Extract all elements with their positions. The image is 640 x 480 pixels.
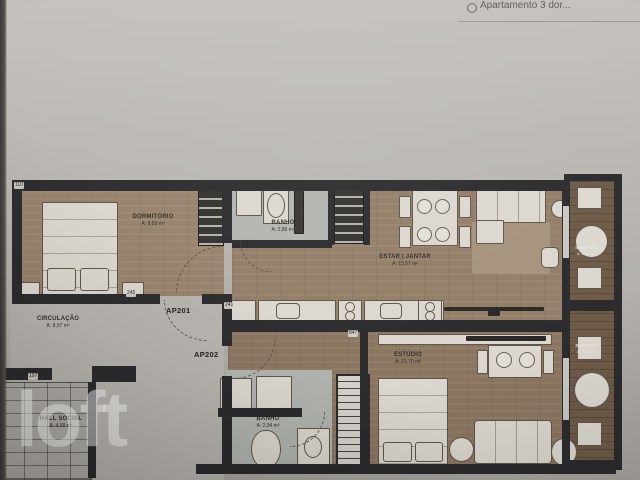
sofa bbox=[474, 420, 552, 464]
room-label-dormitorio: DORMITÓRIO A: 8,53 m² bbox=[118, 214, 188, 227]
listing-header[interactable]: Apartamento 3 dor... bbox=[455, 0, 640, 24]
wall bbox=[362, 374, 370, 468]
dimension-label: 241 bbox=[224, 302, 234, 309]
shower bbox=[236, 188, 262, 216]
place-setting bbox=[417, 199, 432, 214]
kitchen-sink bbox=[380, 303, 402, 319]
pouf bbox=[541, 247, 559, 268]
wall bbox=[92, 366, 136, 382]
room-label-estar-jantar: ESTAR | JANTAR A: 15,57 m² bbox=[372, 254, 438, 267]
sofa-chaise bbox=[476, 220, 504, 244]
chair bbox=[399, 226, 411, 248]
wall bbox=[360, 330, 368, 376]
balcony-table bbox=[574, 372, 610, 408]
closet bbox=[334, 186, 364, 244]
place-setting bbox=[435, 199, 450, 214]
place-setting bbox=[496, 352, 512, 368]
tv-stand bbox=[488, 311, 500, 316]
pillow bbox=[383, 442, 412, 462]
wall bbox=[12, 294, 160, 304]
chair bbox=[543, 350, 554, 374]
header-divider bbox=[458, 21, 640, 22]
room-label-sacada1: SACADA A: 3,05 m² bbox=[566, 246, 606, 257]
wall bbox=[12, 180, 566, 191]
laundry-counter bbox=[256, 376, 292, 409]
toilet bbox=[251, 430, 281, 468]
wall bbox=[196, 464, 616, 474]
wall bbox=[222, 376, 232, 468]
wall bbox=[12, 181, 22, 303]
wardrobe bbox=[198, 184, 224, 246]
room-label-estudio: ESTÚDIO A: 21,70 m² bbox=[380, 352, 436, 365]
room-label-hall-social: HALL SOCIAL A: 4,58 m² bbox=[30, 416, 92, 429]
pillow bbox=[415, 442, 443, 462]
screen-edge-shadow bbox=[0, 0, 7, 480]
wall bbox=[222, 181, 232, 243]
dimension-label: 245 bbox=[126, 290, 136, 297]
sofa bbox=[476, 186, 546, 223]
room-label-banho2: BANHO A: 2,94 m² bbox=[242, 416, 294, 429]
wall bbox=[328, 181, 334, 245]
wall bbox=[88, 382, 96, 478]
listing-icon bbox=[467, 3, 477, 13]
side-table bbox=[449, 437, 474, 462]
balcony-chair bbox=[577, 267, 602, 289]
unit-label-ap202: AP202 bbox=[194, 350, 218, 359]
place-setting bbox=[435, 227, 450, 242]
chair bbox=[459, 226, 471, 248]
pillow bbox=[47, 268, 76, 291]
wall bbox=[564, 300, 616, 311]
wall bbox=[0, 368, 52, 380]
balcony-chair bbox=[577, 187, 602, 209]
wall bbox=[364, 181, 370, 245]
room-label-sacada2: SACADA A: 3,05 m² bbox=[566, 344, 606, 355]
wall bbox=[614, 174, 622, 470]
sink bbox=[267, 193, 285, 218]
room-label-banho1: BANHO A: 2,86 m² bbox=[258, 220, 308, 233]
wall bbox=[222, 320, 568, 332]
screen-photo-of-floorplan: Apartamento 3 dor... bbox=[0, 0, 640, 480]
stairs bbox=[0, 382, 92, 480]
listing-title[interactable]: Apartamento 3 dor... bbox=[480, 0, 571, 11]
place-setting bbox=[519, 352, 535, 368]
shelving-closet bbox=[336, 374, 362, 468]
dimension-label: 847 bbox=[348, 330, 358, 337]
unit-label-ap201: AP201 bbox=[166, 306, 190, 315]
kitchen-sink bbox=[276, 303, 300, 319]
chair bbox=[399, 196, 411, 218]
dimension-label: 110 bbox=[14, 182, 24, 189]
chair bbox=[459, 196, 471, 218]
pillow bbox=[80, 268, 109, 291]
dimension-label: 197 bbox=[28, 373, 38, 380]
chair bbox=[477, 350, 488, 374]
room-label-circulacao: CIRCULAÇÃO A: 8,97 m² bbox=[28, 316, 88, 329]
window bbox=[563, 358, 569, 420]
place-setting bbox=[417, 227, 432, 242]
tv bbox=[466, 336, 546, 341]
balcony-chair bbox=[577, 422, 602, 446]
